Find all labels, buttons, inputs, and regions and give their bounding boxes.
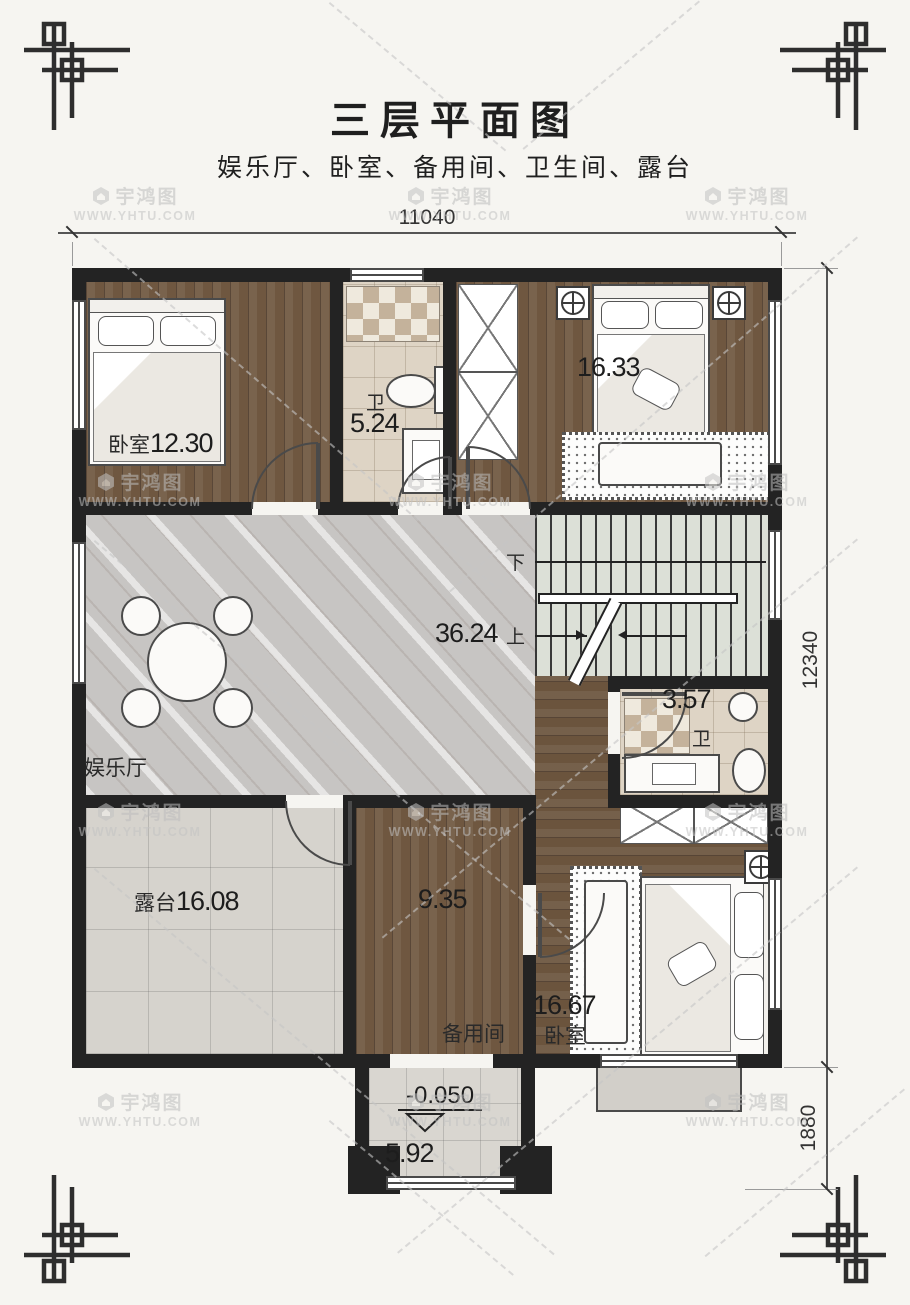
dining-table [147,622,227,702]
stair-up-label: 上 [506,622,525,649]
watermark-brand: 宇鸿图 [727,182,790,209]
label-hall-area: 36.24 [435,618,498,649]
wall-segment [350,795,536,808]
dimension-extension [745,1189,838,1190]
watermark: 宇鸿图 WWW.YHTU.COM [672,182,822,223]
label-bedroom-bottom-right-area: 16.67 [533,990,596,1021]
room-area: 12.30 [150,428,213,458]
floor-plan-sheet: 三层平面图 娱乐厅、卧室、备用间、卫生间、露台 下 上 [0,0,910,1305]
label-bathroom-mid-area: 3.57 [662,684,711,715]
watermark-brand: 宇鸿图 [430,182,493,209]
sink-basin [412,440,440,480]
wall-segment [72,268,782,282]
pillow [655,301,703,329]
chair [213,596,253,636]
elevation-marker: -0.050 [398,1082,482,1110]
watermark-brand: 宇鸿图 [120,1088,183,1115]
label-bedroom-top-left: 卧室12.30 [108,428,213,459]
window [72,542,86,684]
vanity-counter [624,754,720,793]
wall-segment [343,795,356,1068]
room-name: 露台 [134,891,176,915]
watermark: 宇鸿图 WWW.YHTU.COM [65,1088,215,1129]
toilet-bowl-top-bath [386,374,436,408]
sink-basin [652,763,696,785]
dimension-line-top [58,232,796,234]
round-basin [728,692,758,722]
dimension-line-right [826,268,828,1190]
yhtu-logo-icon [703,186,723,206]
wall-segment [608,795,782,808]
window [768,300,782,465]
pillow [734,974,764,1040]
watermark-url: WWW.YHTU.COM [65,1115,215,1129]
watermark-brand: 宇鸿图 [115,182,178,209]
label-bathroom-top-area: 5.24 [350,408,399,439]
bench-top-right [598,442,722,486]
bed-bottom-right [640,876,778,1056]
wall-segment [608,754,620,795]
shower-tile-area [346,286,440,342]
pillow [601,301,649,329]
chair [121,688,161,728]
toilet-mid-bath [732,748,766,793]
page-subtitle: 娱乐厅、卧室、备用间、卫生间、露台 [0,148,910,184]
nightstand-lamp [556,286,590,320]
bed-headboard [90,300,224,313]
watermark: 宇鸿图 WWW.YHTU.COM [60,182,210,223]
elevation-triangle-icon [404,1112,446,1134]
stair-direction-line-down [535,561,766,563]
label-porch-area: 5.92 [385,1138,434,1169]
window [350,268,424,282]
floor-corridor [535,676,608,808]
window [768,878,782,1010]
corner-ornament-bottom-right [780,1175,892,1287]
label-spare-room-name: 备用间 [442,1018,505,1048]
wall-segment [530,502,782,515]
yhtu-logo-icon [91,186,111,206]
bed-headboard [594,286,708,299]
window [72,300,86,430]
wall-segment [330,268,343,515]
dimension-extension [72,242,73,266]
balcony-slab [596,1068,742,1112]
wardrobe-top-right-lower [458,372,518,460]
elevation-value: -0.050 [398,1082,482,1111]
nightstand-lamp [712,286,746,320]
floor-terrace [86,808,343,1054]
watermark-url: WWW.YHTU.COM [60,209,210,223]
sink-top-bath [402,428,448,494]
pillow [98,316,154,346]
label-bathroom-mid-name: 卫 [692,724,711,751]
label-terrace: 露台16.08 [134,886,239,917]
watermark-url: WWW.YHTU.COM [672,209,822,223]
stair-arrowhead [576,630,585,640]
label-bedroom-top-right-area: 16.33 [577,352,640,383]
yhtu-logo-icon [96,1092,116,1112]
wall-segment [443,268,456,515]
corner-ornament-bottom-left [18,1175,130,1287]
dimension-width-total: 11040 [382,206,472,230]
room-name: 卧室 [108,433,150,457]
dimension-height-main: 12340 [799,615,823,705]
wall-segment [72,502,252,515]
label-hall-name: 娱乐厅 [84,752,147,782]
yhtu-logo-icon [406,186,426,206]
wall-segment [72,795,286,808]
wardrobe-top-right-upper [458,284,518,372]
stair-direction-line-up2 [627,635,687,637]
page-title: 三层平面图 [0,88,910,146]
chair [213,688,253,728]
stair-handrail [538,593,738,604]
chair [121,596,161,636]
wall-segment [608,676,620,692]
dimension-extension [781,242,782,266]
stair-down-label: 下 [506,548,525,575]
room-area: 16.08 [176,886,239,916]
stair-arrowhead [618,630,627,640]
label-bedroom-bottom-right-name: 卧室 [544,1020,586,1050]
